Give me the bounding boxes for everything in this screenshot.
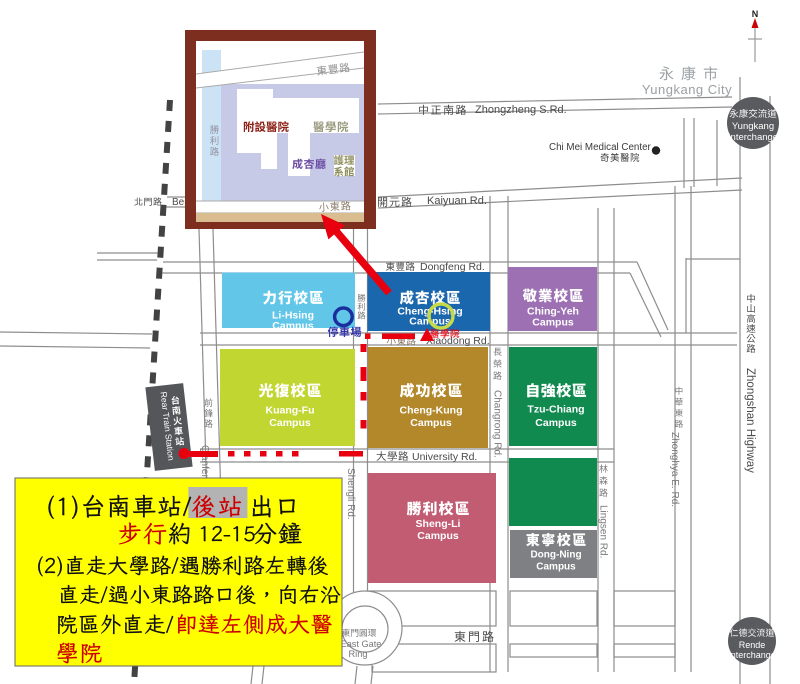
- svg-text:University Rd.: University Rd.: [412, 451, 477, 463]
- svg-text:Kaiyuan Rd.: Kaiyuan Rd.: [427, 195, 487, 207]
- svg-text:Campus: Campus: [536, 562, 576, 573]
- svg-text:N: N: [752, 9, 759, 19]
- svg-text:Rende: Rende: [739, 640, 766, 650]
- svg-text:Zhongzheng S.Rd.: Zhongzheng S.Rd.: [475, 104, 567, 116]
- svg-text:Lingsen Rd.: Lingsen Rd.: [598, 505, 609, 558]
- svg-text:Campus: Campus: [535, 417, 577, 429]
- svg-text:Cheng-Kung: Cheng-Kung: [400, 405, 463, 417]
- svg-text:Chi Mei Medical Center: Chi Mei Medical Center: [549, 142, 652, 153]
- svg-text:Zhonghya E. Rd.: Zhonghya E. Rd.: [669, 432, 680, 507]
- svg-text:Dong-Ning: Dong-Ning: [530, 550, 581, 561]
- svg-text:Interchange: Interchange: [728, 132, 778, 143]
- svg-text:Tzu-Chiang: Tzu-Chiang: [527, 404, 584, 416]
- svg-text:East Gate: East Gate: [341, 639, 382, 649]
- svg-text:Shengli Rd.: Shengli Rd.: [345, 468, 356, 520]
- svg-text:Campus: Campus: [269, 417, 311, 429]
- svg-text:Yungkang City: Yungkang City: [642, 82, 732, 97]
- svg-text:Campus: Campus: [410, 417, 452, 429]
- svg-text:Campus: Campus: [532, 317, 574, 329]
- svg-text:Sheng-Li: Sheng-Li: [416, 518, 461, 530]
- svg-text:Ring: Ring: [349, 649, 368, 659]
- svg-text:Campus: Campus: [417, 530, 459, 542]
- svg-text:Campus: Campus: [272, 320, 314, 332]
- svg-text:Dongfeng Rd.: Dongfeng Rd.: [420, 261, 485, 273]
- svg-text:Changrong Rd.: Changrong Rd.: [492, 390, 503, 458]
- svg-text:Yungkang: Yungkang: [732, 121, 774, 132]
- svg-text:Kuang-Fu: Kuang-Fu: [266, 405, 315, 417]
- svg-text:Zhongshan Highway: Zhongshan Highway: [744, 368, 756, 473]
- svg-text:Interchange: Interchange: [728, 650, 776, 660]
